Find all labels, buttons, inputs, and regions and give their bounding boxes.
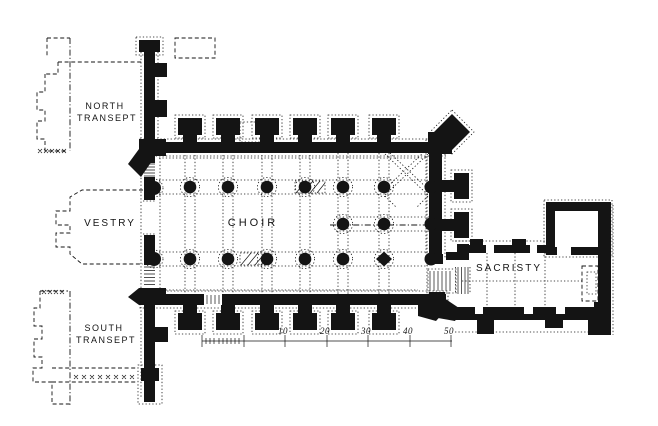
room-label-north-transept-line1: NORTH [85, 101, 124, 111]
scale-label-20: 20 [320, 326, 330, 336]
room-label-vestry: VESTRY [84, 218, 136, 229]
room-label-choir: CHOIR [228, 217, 278, 229]
scale-label-10: 10 [278, 326, 288, 336]
columns [145, 177, 438, 268]
church-floor-plan-drawing: 10 20 30 40 50 NORTH TRANSEPT VESTRY CHO… [0, 0, 658, 426]
room-label-sacristy: SACRISTY [476, 263, 542, 274]
choir-walls [140, 139, 448, 308]
scale-label-30: 30 [360, 326, 371, 336]
scale-label-40: 40 [403, 326, 413, 336]
room-label-north-transept-line2: TRANSEPT [77, 113, 137, 123]
room-label-south-transept-line1: SOUTH [85, 323, 124, 333]
floor-plan-page: 10 20 30 40 50 NORTH TRANSEPT VESTRY CHO… [0, 0, 658, 426]
south-transept-outline [33, 290, 137, 405]
scale-label-50: 50 [444, 326, 454, 336]
room-label-south-transept-line2: TRANSEPT [76, 335, 136, 345]
